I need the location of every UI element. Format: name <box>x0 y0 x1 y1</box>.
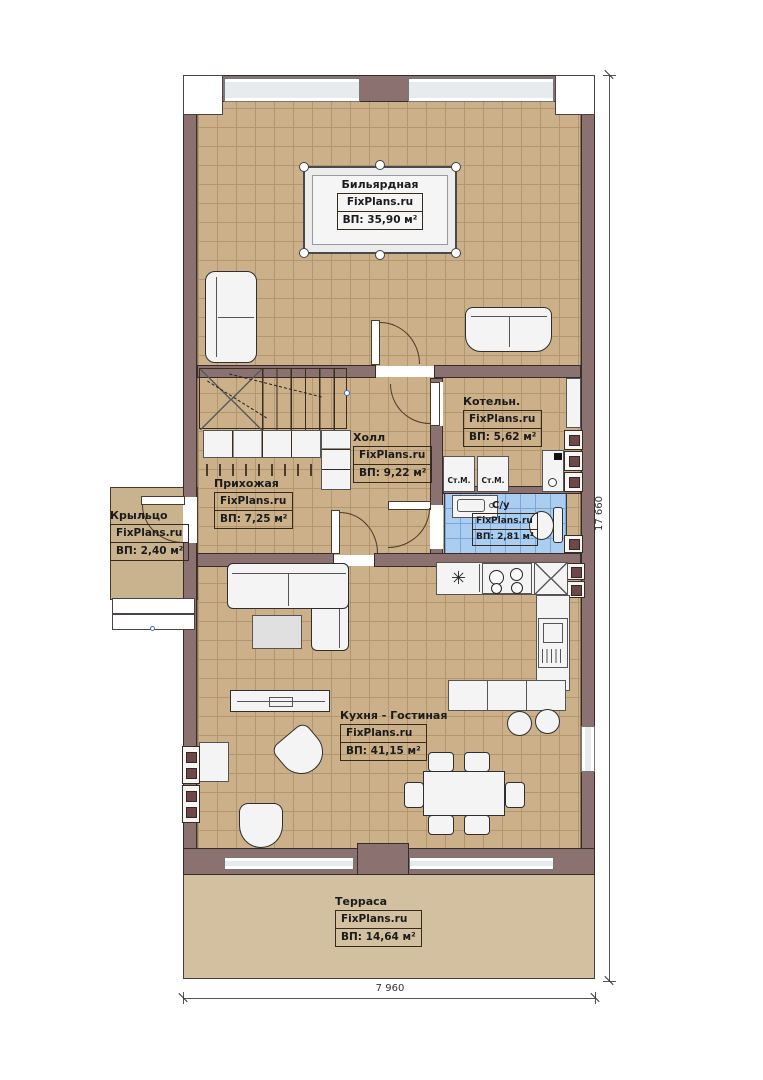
pocket-tm <box>375 160 385 170</box>
boiler-dial <box>548 478 557 487</box>
survey-point-marker <box>150 626 155 631</box>
dining-chair-bottom-2 <box>464 815 490 835</box>
room-name: Кухня - Гостиная <box>340 709 447 722</box>
room-area: ВП: 2,81 м² <box>473 529 537 545</box>
sofa-cushion-divider <box>218 317 254 318</box>
pilaster-5 <box>566 563 585 580</box>
window-top-left <box>224 78 360 102</box>
fireplace-niche-2 <box>182 785 200 823</box>
stair-marker <box>344 390 350 396</box>
room-label-hall: Холл FixPlans.ru ВП: 9,22 м² <box>353 431 432 483</box>
sofa-cushion-divider <box>288 574 289 606</box>
column-top-left <box>183 75 223 115</box>
room-area: ВП: 35,90 м² <box>338 211 423 229</box>
room-label-bath: С/у FixPlans.ru ВП: 2,81 м² <box>472 500 538 546</box>
brand-watermark: FixPlans.ru <box>464 411 541 428</box>
room-label-boiler: Котельн. FixPlans.ru ВП: 5,62 м² <box>463 395 542 447</box>
refrigerator <box>534 562 568 595</box>
billiard-sofa-left <box>205 271 257 363</box>
dining-chair-right <box>505 782 525 808</box>
room-area: ВП: 9,22 м² <box>354 464 431 482</box>
porch-step-1 <box>112 598 195 614</box>
pocket-tr <box>451 162 461 172</box>
dimension-horizontal-value: 7 960 <box>355 983 425 994</box>
pocket-br <box>451 248 461 258</box>
armchair-2 <box>239 803 283 848</box>
room-name: Крыльцо <box>110 509 189 522</box>
washing-machine-1 <box>443 456 475 492</box>
burner-3 <box>491 583 502 594</box>
dining-chair-left <box>404 782 424 808</box>
corner-sofa-horizontal <box>227 563 349 609</box>
door-leaf-boiler <box>430 382 440 426</box>
pilaster-4 <box>564 535 583 553</box>
room-name: Котельн. <box>463 395 542 408</box>
wall-billiard-hall-right <box>434 365 581 378</box>
bar-stool-1 <box>507 711 532 736</box>
room-name: Бильярдная <box>303 178 457 191</box>
sofa-cushion-divider <box>509 317 510 347</box>
brand-watermark: FixPlans.ru <box>354 447 431 464</box>
room-name: Холл <box>353 431 432 444</box>
side-table <box>199 742 229 782</box>
boiler-unit <box>542 450 564 492</box>
room-area: ВП: 7,25 м² <box>215 510 292 528</box>
burner-4 <box>511 582 523 594</box>
stair-treads <box>262 369 348 430</box>
pilaster-2 <box>564 451 583 471</box>
coffee-table <box>252 615 302 649</box>
window-top-right <box>408 78 554 102</box>
kitchen-sink-unit: ✳ <box>438 564 480 592</box>
brand-watermark: FixPlans.ru <box>341 725 426 742</box>
stair-winder <box>200 369 262 430</box>
brand-watermark: FixPlans.ru <box>111 525 188 542</box>
toilet-tank <box>553 507 563 543</box>
room-name: Терраса <box>335 895 422 908</box>
dimension-vertical-value: 17 660 <box>594 496 605 531</box>
pilaster-3 <box>564 472 583 492</box>
brand-watermark: FixPlans.ru <box>473 514 537 529</box>
pilaster-1 <box>564 430 583 450</box>
tv-stand <box>230 690 330 712</box>
room-label-billiard: Бильярдная FixPlans.ru ВП: 35,90 м² <box>303 178 457 230</box>
door-leaf-billiard <box>371 320 380 365</box>
brand-watermark: FixPlans.ru <box>338 194 423 211</box>
room-name: С/у <box>492 500 538 511</box>
burner-2 <box>510 568 523 581</box>
column-top-right <box>555 75 595 115</box>
room-label-kitchen: Кухня - Гостиная FixPlans.ru ВП: 41,15 м… <box>340 709 447 761</box>
room-label-entry: Прихожая FixPlans.ru ВП: 7,25 м² <box>214 477 293 529</box>
sofa-backrest-line <box>216 277 217 357</box>
room-area: ВП: 41,15 м² <box>341 742 426 760</box>
bar-counter <box>448 680 566 711</box>
brand-watermark: FixPlans.ru <box>215 493 292 510</box>
room-label-terrace: Терраса FixPlans.ru ВП: 14,64 м² <box>335 895 422 947</box>
oven-grill <box>542 649 564 663</box>
fireplace-niche-1 <box>182 746 200 784</box>
dimension-line-vertical <box>609 76 610 982</box>
room-area: ВП: 14,64 м² <box>336 928 421 946</box>
bar-stool-2 <box>535 709 560 734</box>
dining-chair-bottom-1 <box>428 815 454 835</box>
dining-table <box>423 771 505 816</box>
room-label-porch: Крыльцо FixPlans.ru ВП: 2,40 м² <box>110 509 189 561</box>
hanger-rail-symbol <box>206 464 318 476</box>
dimension-line-horizontal <box>183 998 595 999</box>
pocket-bl <box>299 248 309 258</box>
window-bottom-left <box>224 857 354 870</box>
staircase <box>199 368 347 429</box>
oven <box>538 618 568 668</box>
brand-watermark: FixPlans.ru <box>336 911 421 928</box>
wall-bottom-middle-pier <box>357 843 409 875</box>
door-leaf-living <box>331 510 340 554</box>
window-right-living <box>581 726 595 772</box>
wardrobe-column <box>321 430 351 490</box>
sink-burst-icon: ✳ <box>451 568 466 589</box>
oven-window <box>543 623 563 643</box>
wardrobe-row <box>203 430 321 458</box>
room-area: ВП: 2,40 м² <box>111 542 188 560</box>
door-opening-billiard <box>376 366 434 377</box>
washing-machine-2-label: Ст.М. <box>477 476 509 485</box>
tv-unit <box>269 697 293 707</box>
door-leaf-entry <box>141 496 185 505</box>
room-area: ВП: 5,62 м² <box>464 428 541 446</box>
room-name: Прихожая <box>214 477 293 490</box>
floor-plan: Ст.М. Ст.М. ✳ <box>0 0 763 1080</box>
billiard-sofa-right <box>465 307 552 352</box>
washing-machine-1-label: Ст.М. <box>443 476 475 485</box>
dining-chair-top-2 <box>464 752 490 772</box>
door-opening-bath <box>430 505 443 549</box>
stove <box>482 563 532 594</box>
boiler-panel <box>554 453 562 460</box>
window-bottom-right <box>409 857 554 870</box>
sofa-backrest-line <box>232 573 346 574</box>
chimney-shaft <box>566 378 581 428</box>
pocket-bm <box>375 250 385 260</box>
pocket-tl <box>299 162 309 172</box>
washing-machine-2 <box>477 456 509 492</box>
